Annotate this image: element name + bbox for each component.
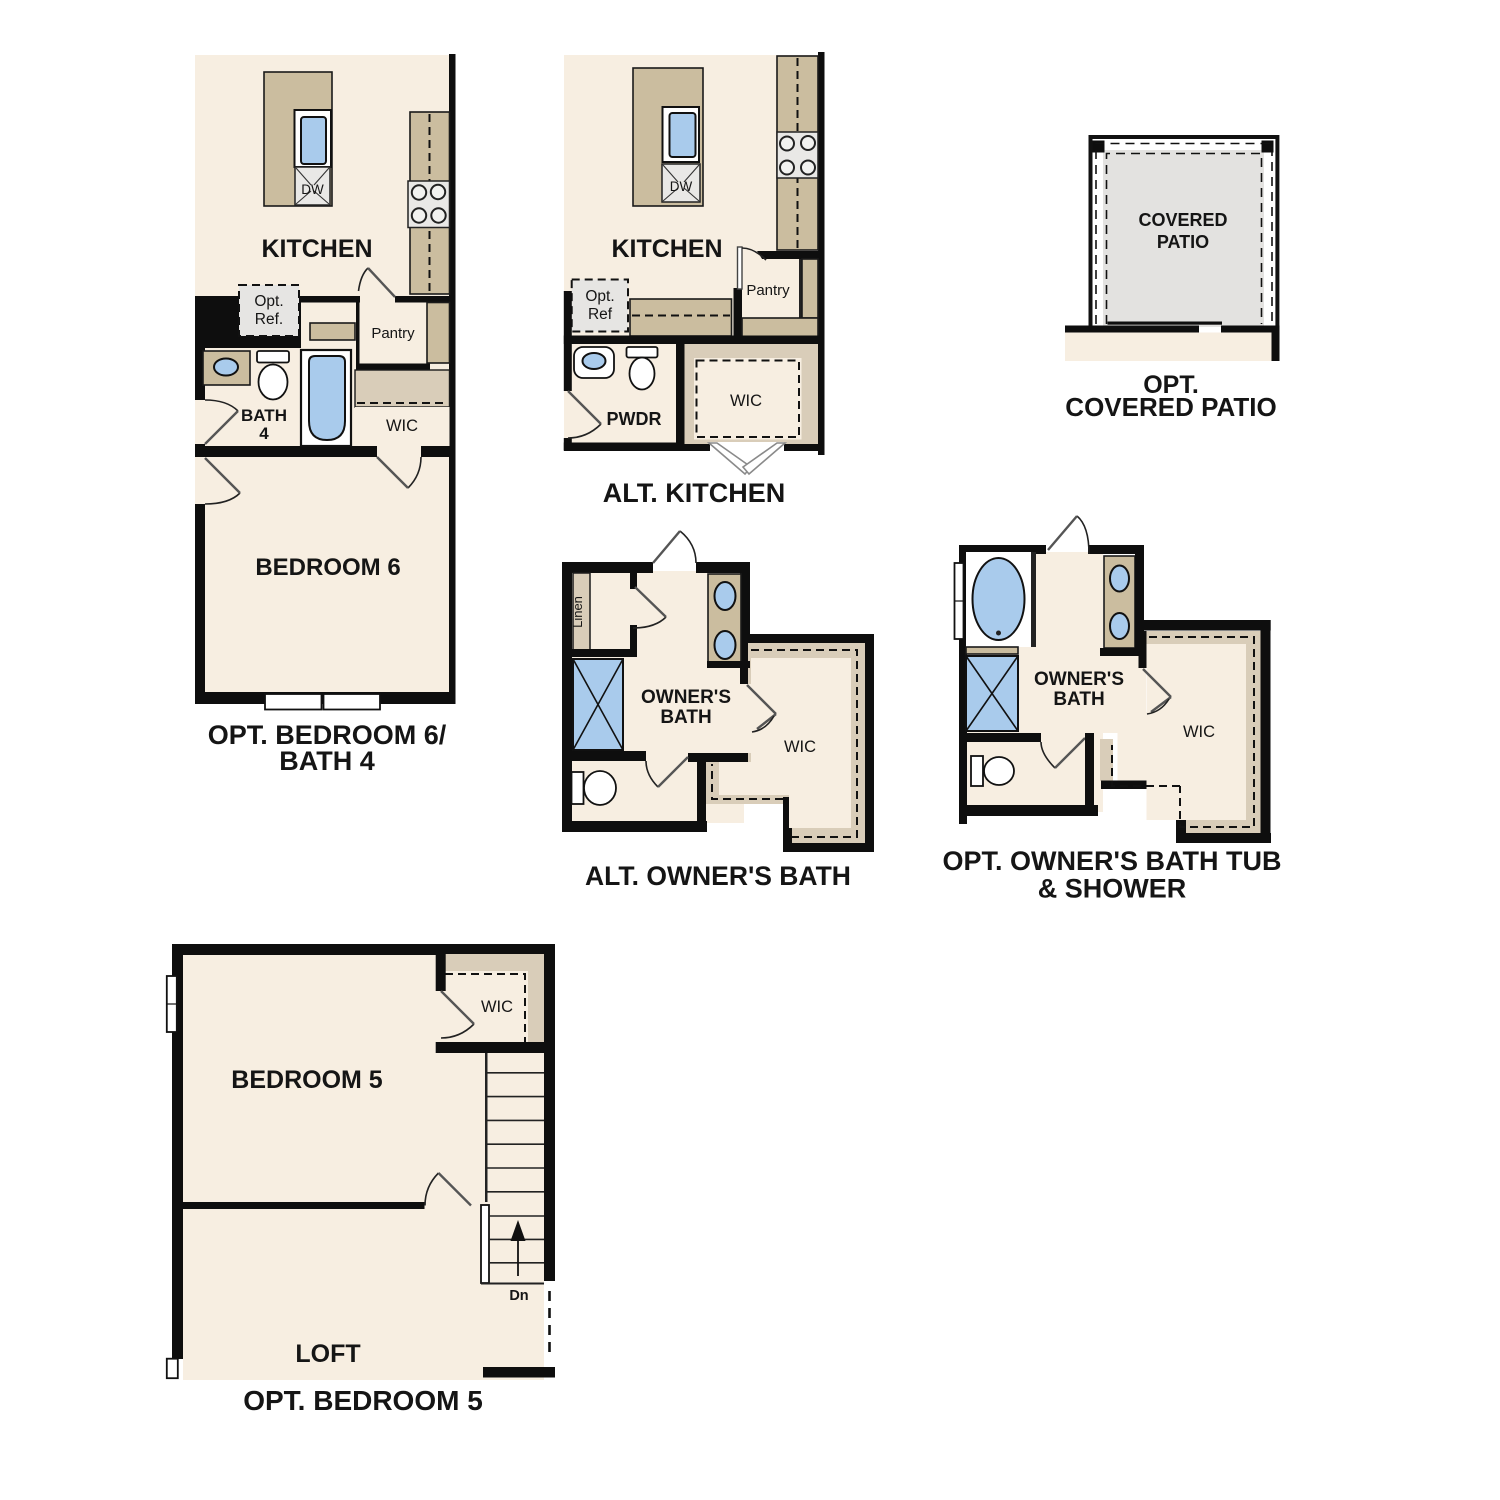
svg-text:WIC: WIC [386, 417, 418, 435]
svg-text:OPT. OWNER'S BATH TUB: OPT. OWNER'S BATH TUB [943, 846, 1282, 876]
svg-text:WIC: WIC [481, 998, 513, 1016]
svg-text:BATH 4: BATH 4 [279, 746, 375, 776]
svg-text:ALT. KITCHEN: ALT. KITCHEN [603, 478, 786, 508]
svg-text:KITCHEN: KITCHEN [261, 235, 372, 263]
svg-text:Pantry: Pantry [371, 325, 415, 342]
svg-text:Linen: Linen [570, 596, 585, 628]
svg-text:COVERED: COVERED [1138, 210, 1227, 230]
svg-text:LOFT: LOFT [295, 1340, 360, 1368]
svg-text:Ref: Ref [588, 306, 613, 323]
svg-text:BATH: BATH [1053, 689, 1104, 710]
svg-text:COVERED PATIO: COVERED PATIO [1065, 392, 1276, 422]
svg-text:WIC: WIC [730, 392, 762, 410]
svg-text:& SHOWER: & SHOWER [1038, 874, 1187, 904]
svg-text:PWDR: PWDR [607, 409, 662, 429]
svg-text:BATH: BATH [660, 707, 711, 728]
svg-text:Ref.: Ref. [255, 311, 283, 328]
svg-text:Pantry: Pantry [746, 282, 790, 299]
svg-text:BEDROOM 5: BEDROOM 5 [231, 1066, 383, 1094]
svg-text:BEDROOM 6: BEDROOM 6 [255, 554, 400, 581]
svg-text:OPT. BEDROOM 5: OPT. BEDROOM 5 [243, 1385, 483, 1416]
svg-text:ALT. OWNER'S BATH: ALT. OWNER'S BATH [585, 861, 851, 891]
svg-text:BATH: BATH [241, 406, 287, 425]
svg-text:OWNER'S: OWNER'S [1034, 669, 1124, 690]
svg-text:PATIO: PATIO [1157, 232, 1209, 252]
svg-text:Dn: Dn [509, 1288, 528, 1304]
svg-text:Opt.: Opt. [585, 288, 614, 305]
svg-text:OWNER'S: OWNER'S [641, 687, 731, 708]
svg-text:DW: DW [301, 182, 324, 197]
svg-text:WIC: WIC [784, 738, 816, 756]
svg-text:KITCHEN: KITCHEN [611, 235, 722, 263]
svg-text:WIC: WIC [1183, 723, 1215, 741]
svg-text:Opt.: Opt. [254, 293, 283, 310]
svg-text:4: 4 [259, 424, 269, 443]
svg-text:DW: DW [670, 179, 693, 194]
